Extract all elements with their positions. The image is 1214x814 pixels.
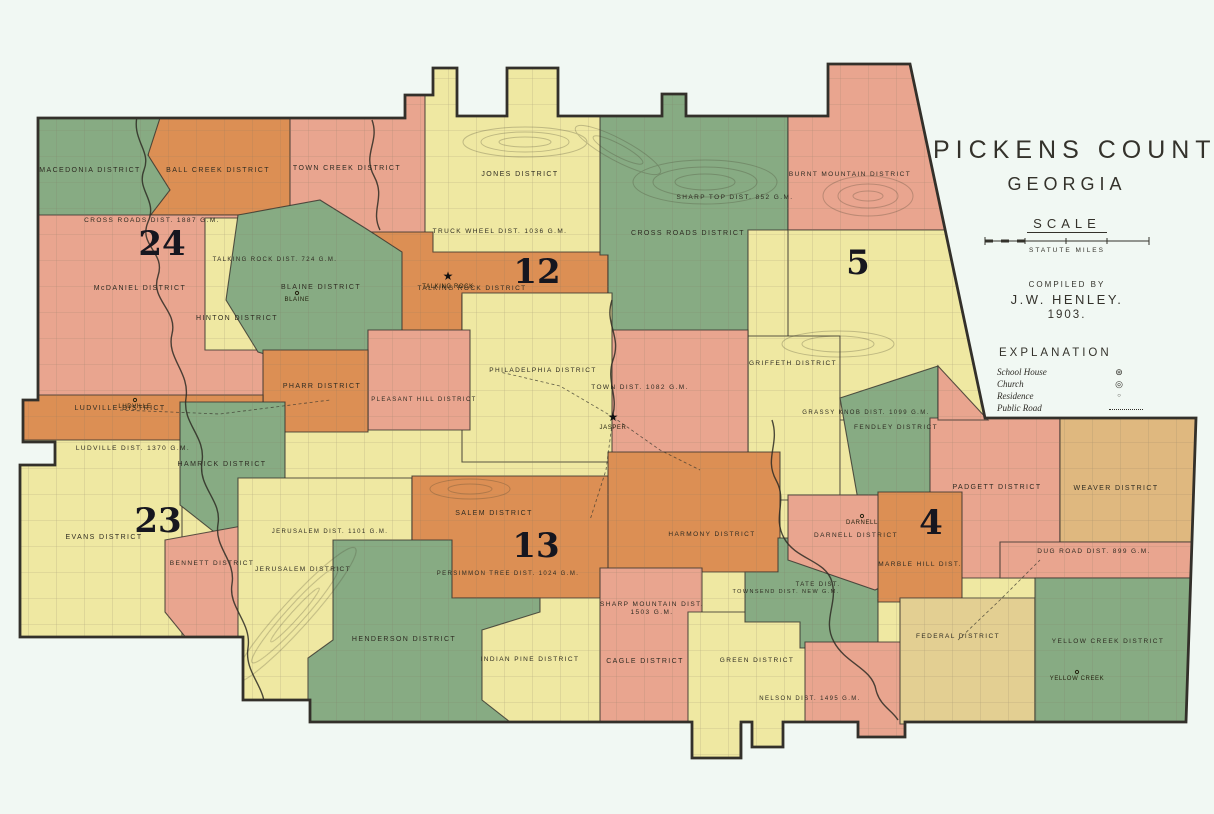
district-label-blaine-district: BLAINE DISTRICT — [281, 284, 361, 291]
land-district-number-4: 4 — [919, 503, 943, 543]
district-label-pharr-district: PHARR DISTRICT — [283, 383, 361, 390]
district-label-federal-district: FEDERAL DISTRICT — [916, 633, 1000, 640]
explanation-legend: School House⊛Church◎Residence○Public Roa… — [997, 366, 1129, 414]
district-label-weaver-district: WEAVER DISTRICT — [1073, 485, 1158, 492]
district-label-cross-roads-dist-1887-g-m: CROSS ROADS DIST. 1887 G.M. — [84, 217, 220, 224]
legend-label-road: Public Road — [997, 403, 1042, 413]
district-label-nelson-dist-1495-g-m: NELSON DIST. 1495 G.M. — [759, 696, 861, 702]
district-label-ball-creek-district: BALL CREEK DISTRICT — [166, 167, 270, 174]
district-label-green-district: GREEN DISTRICT — [720, 657, 795, 664]
district-label-macedonia-district: MACEDONIA DISTRICT — [39, 167, 140, 174]
legend-row-church: Church◎ — [997, 378, 1129, 390]
road-symbol-icon — [1109, 403, 1129, 413]
land-district-number-23: 23 — [134, 501, 181, 541]
district-label-griffeth-district: GRIFFETH DISTRICT — [749, 360, 837, 367]
school-symbol-icon: ⊛ — [1109, 367, 1129, 378]
place-label-yellow-creek: YELLOW CREEK — [1050, 676, 1105, 682]
district-label-fendley-district: FENDLEY DISTRICT — [854, 424, 938, 431]
map-year: 1903. — [933, 309, 1201, 321]
district-label-burnt-mountain-district: BURNT MOUNTAIN DISTRICT — [789, 171, 911, 178]
district-label-town-dist-1082-g-m: TOWN DIST. 1082 G.M. — [591, 384, 689, 391]
district-label-hinton-district: HINTON DISTRICT — [196, 315, 278, 322]
district-label-truck-wheel-dist-1036-g-m: TRUCK WHEEL DIST. 1036 G.M. — [433, 228, 568, 235]
district-label-mcdaniel-district: McDANIEL DISTRICT — [94, 285, 186, 292]
place-label-ludville: LUDVILLE — [118, 404, 151, 410]
district-label-harmony-district: HARMONY DISTRICT — [668, 531, 755, 538]
road-dash-icon — [1109, 409, 1143, 411]
town-star-talking-rock: ★ — [443, 269, 454, 283]
district-label-talking-rock-dist-724-g-m: TALKING ROCK DIST. 724 G.M. — [213, 257, 338, 263]
legend-row-residence: Residence○ — [997, 390, 1129, 402]
place-label-darnell: DARNELL — [846, 520, 878, 526]
residence-symbol-icon: ○ — [1109, 393, 1129, 399]
district-label-jerusalem-dist-1101-g-m: JERUSALEM DIST. 1101 G.M. — [272, 529, 389, 535]
legend-label-residence: Residence — [997, 391, 1033, 401]
land-district-number-13: 13 — [512, 526, 559, 566]
land-district-number-5: 5 — [846, 243, 870, 283]
place-label-jasper: JASPER — [600, 425, 627, 431]
district-label-evans-district: EVANS DISTRICT — [65, 534, 142, 541]
district-label-philadelphia-district: PHILADELPHIA DISTRICT — [489, 367, 596, 374]
district-label-grassy-knob-dist-1099-g-m: GRASSY KNOB DIST. 1099 G.M. — [802, 410, 929, 416]
district-label-dug-road-dist-899-g-m: DUG ROAD DIST. 899 G.M. — [1037, 548, 1150, 555]
district-label-tate-dist: TATE DIST. — [796, 582, 841, 588]
district-label-henderson-district: HENDERSON DISTRICT — [352, 636, 456, 643]
district-label-bennett-district: BENNETT DISTRICT — [170, 560, 254, 567]
legend-label-church: Church — [997, 379, 1024, 389]
explanation-title: EXPLANATION — [933, 347, 1201, 359]
legend-row-school: School House⊛ — [997, 366, 1129, 378]
district-label-jerusalem-district: JERUSALEM DISTRICT — [255, 566, 351, 573]
district-label-townsend-dist-new-g-m: TOWNSEND DIST. NEW G.M. — [733, 589, 840, 595]
district-label-cross-roads-district: CROSS ROADS DISTRICT — [631, 230, 745, 237]
town-star-jasper: ★ — [608, 410, 619, 424]
scale-units: STATUTE MILES — [933, 247, 1201, 254]
compiled-by-label: COMPILED BY — [933, 280, 1201, 289]
place-label-blaine: BLAINE — [285, 297, 310, 303]
district-label-yellow-creek-district: YELLOW CREEK DISTRICT — [1052, 638, 1164, 645]
district-label-marble-hill-dist: MARBLE HILL DIST. — [878, 561, 962, 568]
district-label-salem-district: SALEM DISTRICT — [455, 510, 533, 517]
map-subtitle: GEORGIA — [933, 174, 1201, 195]
district-label-indian-pine-district: INDIAN PINE DISTRICT — [481, 656, 580, 663]
scale-bar — [982, 236, 1152, 246]
district-label-jones-district: JONES DISTRICT — [481, 171, 558, 178]
district-label-sharp-top-dist-852-g-m: SHARP TOP DIST. 852 G.M. — [677, 194, 794, 201]
church-symbol-icon: ◎ — [1109, 379, 1129, 390]
legend-label-school: School House — [997, 367, 1047, 377]
district-label-padgett-district: PADGETT DISTRICT — [952, 484, 1041, 491]
scale-label: SCALE — [1027, 216, 1107, 233]
place-label-talking-rock: TALKING ROCK — [422, 284, 473, 290]
compiler-name: J.W. HENLEY. — [933, 292, 1201, 307]
land-district-number-12: 12 — [513, 252, 560, 292]
map-title: PICKENS COUNTY — [933, 136, 1201, 165]
district-label-persimmon-tree-dist-1024-g-m: PERSIMMON TREE DIST. 1024 G.M. — [437, 571, 580, 577]
map-sheet: MACEDONIA DISTRICTBALL CREEK DISTRICTTOW… — [0, 0, 1214, 809]
district-label-cagle-district: CAGLE DISTRICT — [606, 658, 684, 665]
district-label-town-creek-district: TOWN CREEK DISTRICT — [293, 165, 401, 172]
title-block: PICKENS COUNTY GEORGIA SCALE STATUTE MIL… — [933, 136, 1201, 414]
land-district-number-24: 24 — [138, 224, 185, 264]
district-label-pleasant-hill-district: PLEASANT HILL DISTRICT — [371, 397, 477, 403]
legend-row-road: Public Road — [997, 402, 1129, 414]
scale-section: SCALE STATUTE MILES — [933, 215, 1201, 254]
district-label-darnell-district: DARNELL DISTRICT — [814, 532, 898, 539]
district-label-hamrick-district: HAMRICK DISTRICT — [178, 461, 267, 468]
district-label-ludville-dist-1370-g-m: LUDVILLE DIST. 1370 G.M. — [76, 445, 190, 452]
